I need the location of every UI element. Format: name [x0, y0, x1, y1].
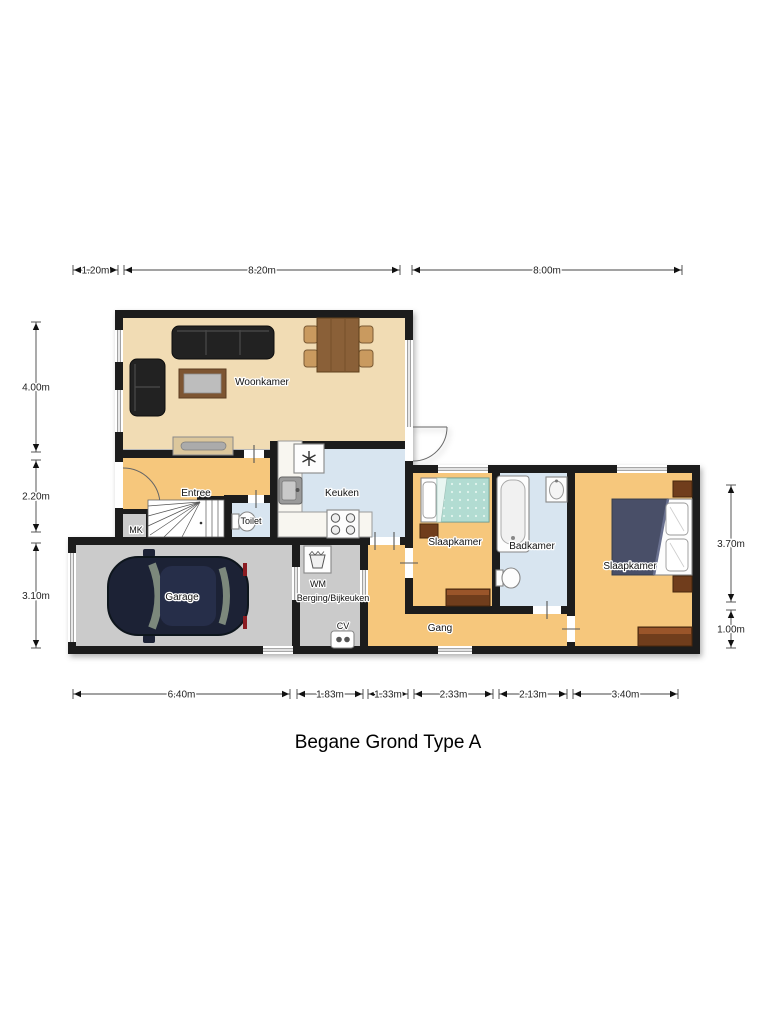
page-title: Begane Grond Type A	[295, 732, 482, 753]
dimension-label: 3.10m	[22, 591, 50, 602]
dimension-label: 1.00m	[717, 625, 745, 636]
room-label-garage: Garage	[165, 592, 199, 603]
stairs-icon	[148, 500, 224, 537]
dimension-label: 8.20m	[248, 266, 276, 277]
dimension-right-1: 1.00m	[717, 610, 745, 648]
dimension-label: 3.70m	[717, 539, 745, 550]
nightstand-icon	[673, 481, 692, 497]
dimension-label: 4.00m	[22, 383, 50, 394]
coffee-table-icon	[179, 369, 226, 398]
floor-plan-canvas: Woonkamer Entree Toilet MK Keuken Garage…	[0, 0, 768, 1024]
dimension-bottom-0: 6.40m	[73, 689, 290, 701]
dimension-bottom-1: 1.83m	[297, 689, 363, 701]
dimension-bottom-4: 2.13m	[499, 689, 567, 701]
sofa-icon	[172, 326, 274, 359]
room-label-berging: Berging/Bijkeuken	[297, 593, 370, 603]
window-slaapkamer2-top	[617, 465, 667, 473]
room-label-woonkamer: Woonkamer	[235, 377, 289, 388]
window-woonkamer-right	[405, 340, 413, 432]
dimension-left-1: 2.20m	[22, 460, 50, 532]
room-label-badkamer: Badkamer	[509, 541, 555, 552]
dresser-icon	[446, 589, 490, 606]
nightstand-icon	[420, 524, 438, 538]
sofa-icon	[130, 359, 165, 416]
dimension-bottom-5: 3.40m	[573, 689, 678, 701]
window-woonkamer-left-2	[115, 390, 123, 432]
room-label-entree: Entree	[181, 488, 211, 499]
dimension-bottom-2: 1.33m	[368, 689, 408, 701]
window-garage-bottom	[263, 646, 293, 654]
room-label-wm: WM	[310, 579, 326, 589]
single-bed-icon	[421, 478, 489, 522]
dimension-label: 1.20m	[82, 266, 110, 277]
room-label-toilet: Toilet	[240, 516, 262, 526]
room-label-keuken: Keuken	[325, 488, 359, 499]
dimension-label: 1.83m	[316, 690, 344, 701]
room-gang-connector	[368, 545, 405, 646]
dimension-label: 6.40m	[168, 690, 196, 701]
dimension-right-0: 3.70m	[717, 485, 745, 602]
toilet-icon	[496, 568, 520, 588]
back-door	[405, 427, 447, 461]
nightstand-icon	[673, 576, 692, 592]
dimension-top-2: 8.00m	[412, 265, 682, 277]
cv-boiler-icon	[331, 631, 354, 648]
floor-plan-page: Woonkamer Entree Toilet MK Keuken Garage…	[0, 0, 768, 1024]
washing-machine-icon	[304, 546, 331, 573]
room-label-slaapkamer1: Slaapkamer	[428, 537, 482, 548]
stove-icon	[327, 510, 359, 538]
dimension-left-0: 4.00m	[22, 322, 50, 452]
room-label-gang: Gang	[428, 623, 452, 634]
dimension-label: 2.20m	[22, 492, 50, 503]
dimension-bottom-3: 2.33m	[414, 689, 493, 701]
room-label-slaapkamer2: Slaapkamer	[603, 561, 657, 572]
room-label-cv: CV	[337, 621, 350, 631]
dimension-left-2: 3.10m	[22, 543, 50, 648]
window-gang-bottom	[438, 646, 472, 654]
bathroom-sink-icon	[546, 477, 567, 502]
kitchen-sink-icon	[279, 477, 302, 504]
room-label-mk: MK	[129, 525, 143, 535]
dresser-icon	[638, 627, 692, 646]
window-slaapkamer1-top	[438, 465, 488, 473]
dimension-top-1: 8.20m	[124, 265, 400, 277]
dimension-top-0: 1.20m	[73, 265, 118, 277]
dimension-label: 8.00m	[533, 266, 561, 277]
dimension-label: 1.33m	[374, 690, 402, 701]
building	[68, 310, 700, 654]
dimension-label: 2.13m	[519, 690, 547, 701]
dimension-label: 2.33m	[440, 690, 468, 701]
radiator-icon	[173, 437, 233, 455]
window-woonkamer-left-1	[115, 330, 123, 362]
garage-door	[68, 553, 76, 642]
fridge-icon	[294, 444, 324, 473]
dimension-label: 3.40m	[612, 690, 640, 701]
